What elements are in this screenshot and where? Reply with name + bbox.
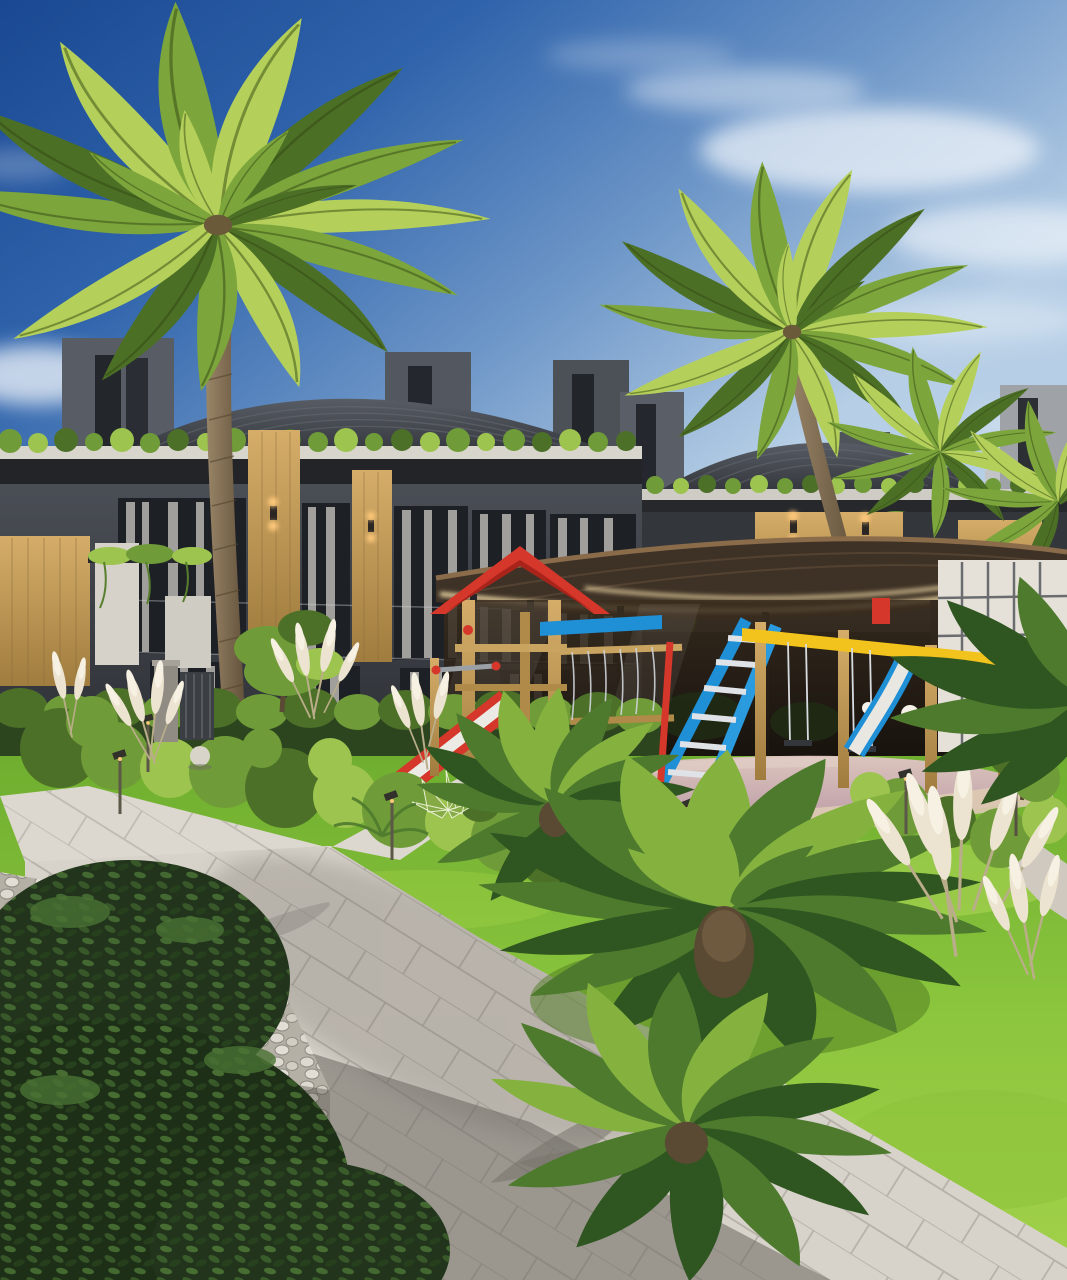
terrace-planters-left xyxy=(0,428,642,486)
scene-canvas xyxy=(0,0,1067,1280)
architectural-render xyxy=(0,0,1067,1280)
privacy-wall xyxy=(0,536,216,686)
